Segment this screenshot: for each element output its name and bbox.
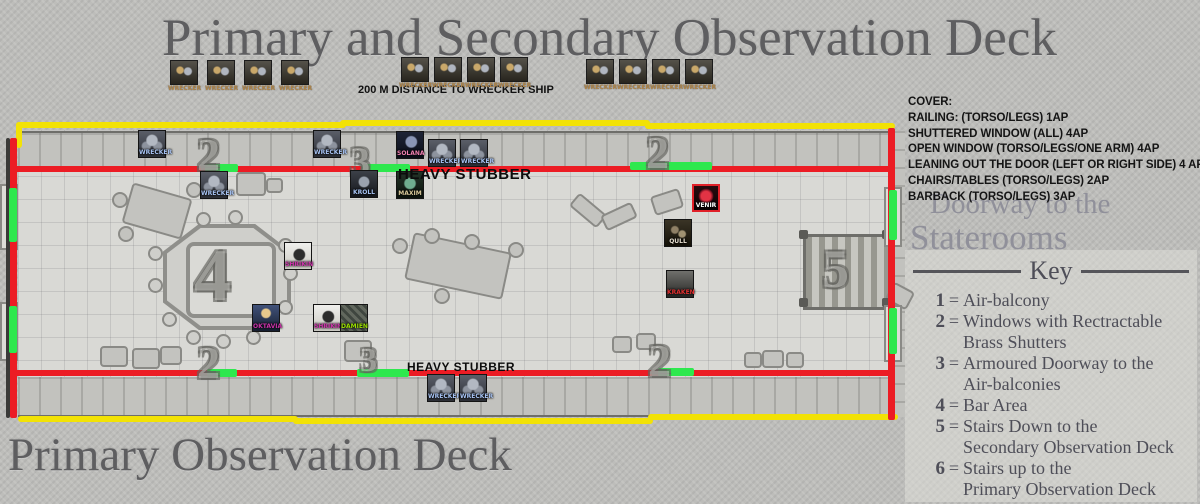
boarding-token-art xyxy=(586,59,614,84)
boarding-token-label: WRECKER xyxy=(242,85,274,93)
boarding-token-art xyxy=(619,59,647,84)
map-token-wrecker[interactable]: WRECKER xyxy=(138,130,166,158)
key-item-number: 6 xyxy=(931,458,945,500)
map-token-venir[interactable]: VENIR xyxy=(692,184,720,212)
bar-stool xyxy=(148,278,163,293)
boarding-token-label: WRECKER xyxy=(205,85,237,93)
bar-stool xyxy=(278,300,293,315)
map-token-kraken[interactable]: KRAKEN xyxy=(666,270,694,298)
map-token-label: SHRIKIN xyxy=(285,261,311,269)
map-number-5: 5 xyxy=(822,238,849,300)
cover-rules-panel: COVER: RAILING: (TORSO/LEGS) 1APSHUTTERE… xyxy=(908,95,1200,206)
boarding-token-art xyxy=(401,57,429,82)
boarding-token-art xyxy=(467,57,495,82)
key-item-equals: = xyxy=(945,395,963,416)
table xyxy=(132,348,160,369)
boarding-token[interactable]: WRECKER xyxy=(168,60,200,93)
key-item-line: Stairs up to the xyxy=(963,458,1156,479)
chair xyxy=(508,242,524,258)
boarding-token-art xyxy=(244,60,272,85)
key-item-5: 5=Stairs Down to theSecondary Observatio… xyxy=(931,416,1197,458)
boarding-token[interactable]: WRECKER xyxy=(683,59,715,92)
map-number-2: 2 xyxy=(648,334,671,387)
key-item-line: Armoured Doorway to the xyxy=(963,353,1153,374)
key-item-number: 4 xyxy=(931,395,945,416)
key-header: Key xyxy=(913,256,1189,286)
map-token-shrikin[interactable]: SHRIKIN xyxy=(284,242,312,270)
key-item-number: 1 xyxy=(931,290,945,311)
map-token-oktavia[interactable]: OKTAVIA xyxy=(252,304,280,332)
key-item-number: 2 xyxy=(931,311,945,353)
map-number-3: 3 xyxy=(360,342,377,380)
key-rule-right xyxy=(1081,270,1189,273)
heavy-stubber-label: HEAVY STUBBER xyxy=(407,360,515,374)
outer-wall-line xyxy=(16,122,346,128)
key-item-4: 4=Bar Area xyxy=(931,395,1197,416)
map-number-4: 4 xyxy=(194,234,231,319)
map-token-label: WRECKER xyxy=(139,149,165,157)
key-rule-left xyxy=(913,270,1021,273)
bar-stool xyxy=(162,312,177,327)
key-item-text: Air-balcony xyxy=(963,290,1050,311)
bar-stool xyxy=(228,210,243,225)
boarding-token-label: WRECKER xyxy=(584,84,616,92)
boarding-token-label: WRECKER xyxy=(432,82,464,90)
cover-rule-line: SHUTTERED WINDOW (ALL) 4AP xyxy=(908,127,1200,143)
key-item-line: Brass Shutters xyxy=(963,332,1162,353)
key-item-1: 1=Air-balcony xyxy=(931,290,1197,311)
boarding-token[interactable]: WRECKER xyxy=(617,59,649,92)
scanned-battle-map-page: Primary and Secondary Observation Deck P… xyxy=(0,0,1200,504)
table xyxy=(100,346,128,367)
boarding-token-label: WRECKER xyxy=(617,84,649,92)
key-item-text: Bar Area xyxy=(963,395,1027,416)
map-token-label: SHRIKIN xyxy=(314,323,340,331)
map-token-shrikin[interactable]: SHRIKIN xyxy=(313,304,341,332)
key-item-3: 3=Armoured Doorway to theAir-balconies xyxy=(931,353,1197,395)
chair xyxy=(118,226,134,242)
boarding-token-label: WRECKER xyxy=(650,84,682,92)
key-item-equals: = xyxy=(945,416,963,458)
boarding-token[interactable]: WRECKER xyxy=(584,59,616,92)
boarding-token-label: WRECKER xyxy=(683,84,715,92)
key-item-equals: = xyxy=(945,353,963,395)
key-item-line: Air-balcony xyxy=(963,290,1050,311)
door-opening xyxy=(889,190,897,240)
bar-stool xyxy=(196,212,211,227)
outer-wall-line xyxy=(648,414,898,420)
map-token-wrecker[interactable]: WRECKER xyxy=(313,130,341,158)
boarding-token-label: WRECKER xyxy=(399,82,431,90)
cover-rule-line: CHAIRS/TABLES (TORSO/LEGS) 2AP xyxy=(908,174,1200,190)
key-item-2: 2=Windows with RectractableBrass Shutter… xyxy=(931,311,1197,353)
stair-post xyxy=(799,298,808,307)
table xyxy=(744,352,762,368)
map-token-wrecker[interactable]: WRECKER xyxy=(460,139,488,167)
inner-wall-right xyxy=(888,128,895,420)
key-item-line: Primary Observation Deck xyxy=(963,479,1156,500)
map-token-kroll[interactable]: KROLL xyxy=(350,170,378,198)
outer-wall-line xyxy=(18,416,298,422)
key-item-line: Secondary Observation Deck xyxy=(963,437,1174,458)
cover-rule-line: BARBACK (TORSO/LEGS) 3AP xyxy=(908,190,1200,206)
chair xyxy=(112,192,128,208)
map-token-label: WRECKER xyxy=(201,190,227,198)
boarding-token[interactable]: WRECKER xyxy=(205,60,237,93)
map-token-label: WRECKER xyxy=(461,158,487,166)
boarding-token-art xyxy=(434,57,462,82)
stair-post xyxy=(799,230,808,239)
key-item-text: Stairs Down to theSecondary Observation … xyxy=(963,416,1174,458)
boarding-token[interactable]: WRECKER xyxy=(465,57,497,90)
boarding-token-label: WRECKER xyxy=(168,85,200,93)
map-token-label: SOLANA xyxy=(397,150,423,158)
outer-wall-line xyxy=(340,120,650,126)
key-item-equals: = xyxy=(945,290,963,311)
door-opening xyxy=(889,308,897,354)
map-token-wrecker[interactable]: WRECKER xyxy=(459,374,487,402)
boarding-token[interactable]: WRECKER xyxy=(399,57,431,90)
window-opening xyxy=(630,162,712,170)
cover-rule-line: LEANING OUT THE DOOR (LEFT OR RIGHT SIDE… xyxy=(908,158,1200,174)
boarding-token-art xyxy=(170,60,198,85)
key-item-line: Air-balconies xyxy=(963,374,1153,395)
key-item-line: Stairs Down to the xyxy=(963,416,1174,437)
key-item-text: Armoured Doorway to theAir-balconies xyxy=(963,353,1153,395)
inner-wall-left xyxy=(10,138,17,418)
map-token-qull[interactable]: QULL xyxy=(664,219,692,247)
key-item-text: Stairs up to thePrimary Observation Deck xyxy=(963,458,1156,500)
key-legend-panel: Key 1=Air-balcony2=Windows with Rectract… xyxy=(905,250,1197,502)
key-item-equals: = xyxy=(945,311,963,353)
map-token-label: KRAKEN xyxy=(667,289,693,297)
chair xyxy=(424,228,440,244)
boarding-token[interactable]: WRECKER xyxy=(242,60,274,93)
boarding-token-art xyxy=(281,60,309,85)
boarding-token-art xyxy=(207,60,235,85)
cover-rule-line: RAILING: (TORSO/LEGS) 1AP xyxy=(908,111,1200,127)
table xyxy=(266,178,283,193)
boarding-token-art xyxy=(500,57,528,82)
map-token-wrecker[interactable]: WRECKER xyxy=(428,139,456,167)
map-token-label: WRECKER xyxy=(429,158,455,166)
map-token-label: WRECKER xyxy=(428,393,454,401)
chair xyxy=(434,288,450,304)
deck-caption: Primary Observation Deck xyxy=(8,428,512,482)
chair xyxy=(464,234,480,250)
key-item-6: 6=Stairs up to thePrimary Observation De… xyxy=(931,458,1197,500)
boarding-token-art xyxy=(652,59,680,84)
chair xyxy=(392,238,408,254)
boarding-token-label: WRECKER xyxy=(465,82,497,90)
map-token-label: QULL xyxy=(665,238,691,246)
map-token-wrecker[interactable]: WRECKER xyxy=(200,171,228,199)
table xyxy=(762,350,784,368)
boarding-token[interactable]: WRECKER xyxy=(650,59,682,92)
outer-wall-line xyxy=(293,418,653,424)
map-token-label: VENIR xyxy=(694,202,718,210)
table xyxy=(236,172,266,196)
map-token-label: WRECKER xyxy=(460,393,486,401)
map-token-damien[interactable]: DAMIEN xyxy=(340,304,368,332)
table xyxy=(160,346,182,365)
boarding-token[interactable]: WRECKER xyxy=(498,57,530,90)
bar-stool xyxy=(148,246,163,261)
key-item-number: 3 xyxy=(931,353,945,395)
table xyxy=(786,352,804,368)
door-opening xyxy=(9,306,17,353)
key-item-line: Bar Area xyxy=(963,395,1027,416)
boarding-token-art xyxy=(685,59,713,84)
key-list: 1=Air-balcony2=Windows with Rectractable… xyxy=(931,290,1197,500)
key-item-line: Windows with Rectractable xyxy=(963,311,1162,332)
map-token-label: OKTAVIA xyxy=(253,323,279,331)
key-title: Key xyxy=(1029,256,1072,286)
map-token-wrecker[interactable]: WRECKER xyxy=(427,374,455,402)
key-item-number: 5 xyxy=(931,416,945,458)
map-token-label: KROLL xyxy=(351,189,377,197)
table xyxy=(612,336,632,353)
map-number-2: 2 xyxy=(646,126,669,179)
boarding-token-label: WRECKER xyxy=(498,82,530,90)
cover-lines: RAILING: (TORSO/LEGS) 1APSHUTTERED WINDO… xyxy=(908,111,1200,206)
map-token-label: MAXIM xyxy=(397,190,423,198)
cover-rule-line: OPEN WINDOW (TORSO/LEGS/ONE ARM) 4AP xyxy=(908,142,1200,158)
key-item-equals: = xyxy=(945,458,963,500)
outer-wall-line xyxy=(645,123,895,129)
heavy-stubber-label: HEAVY STUBBER xyxy=(398,166,531,183)
map-token-label: DAMIEN xyxy=(341,323,367,331)
bar-stool xyxy=(246,330,261,345)
map-token-solana[interactable]: SOLANA xyxy=(396,131,424,159)
map-token-label: WRECKER xyxy=(314,149,340,157)
boarding-token-label: WRECKER xyxy=(279,85,311,93)
door-opening xyxy=(9,188,17,242)
key-item-text: Windows with RectractableBrass Shutters xyxy=(963,311,1162,353)
boarding-token[interactable]: WRECKER xyxy=(432,57,464,90)
cover-heading: COVER: xyxy=(908,95,1200,111)
boarding-token[interactable]: WRECKER xyxy=(279,60,311,93)
map-number-2: 2 xyxy=(197,336,220,389)
